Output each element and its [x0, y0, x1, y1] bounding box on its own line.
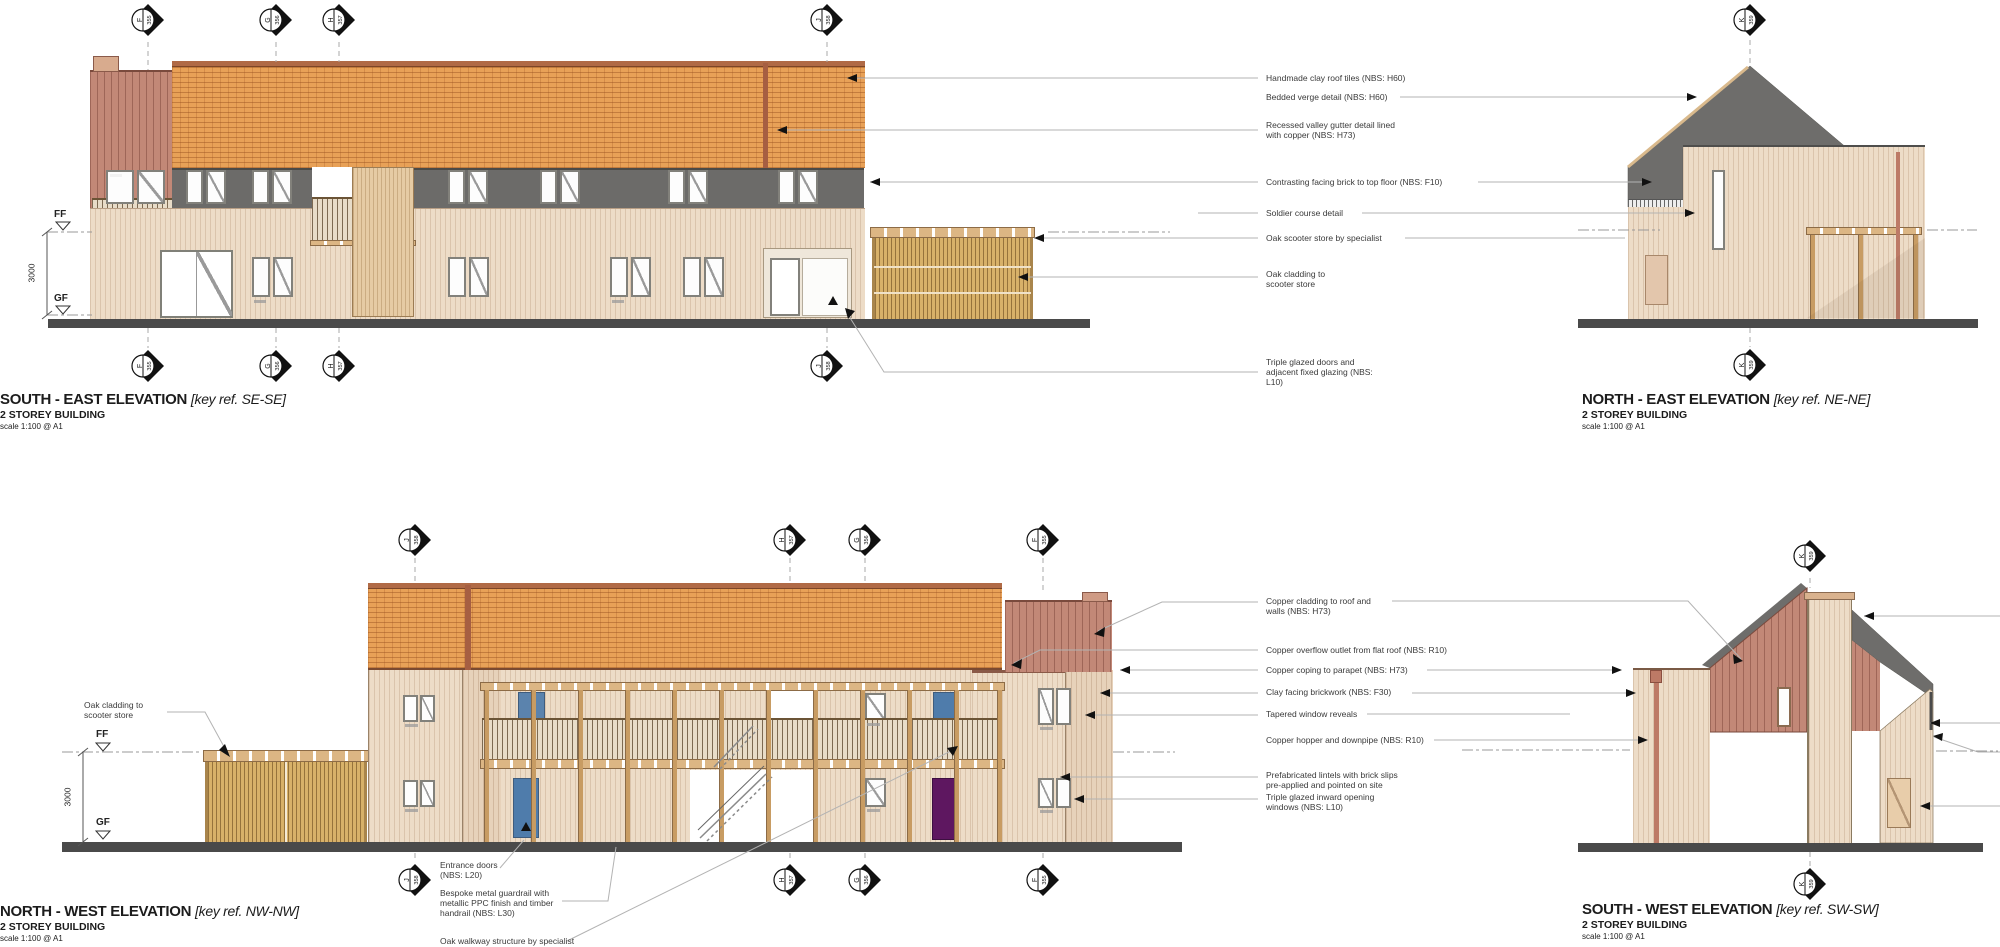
grid-letter: H — [779, 537, 786, 542]
grid-number: 358 — [414, 875, 420, 884]
sw-left-wall — [1633, 668, 1710, 843]
grid-letter: G — [265, 17, 272, 22]
nw-store-split — [285, 762, 287, 842]
se-fixed-glazing — [802, 258, 848, 316]
grid-number: 355 — [147, 15, 153, 24]
grid-number: 358 — [826, 361, 832, 370]
ne-ground-line — [1578, 319, 1978, 328]
walkway-post — [672, 690, 677, 842]
grid-number: 357 — [338, 361, 344, 370]
se-key-ref: [key ref. SE-SE] — [191, 391, 286, 407]
ne-title-block: NORTH - EAST ELEVATION [key ref. NE-NE] … — [1582, 391, 1870, 431]
window-tag — [254, 300, 266, 303]
annotation-triple-glazed-doors: Triple glazed doors and adjacent fixed g… — [1266, 357, 1373, 387]
drawing-sheet: F355 G356 H357 J358 F355 G356 H357 J358 … — [0, 0, 2000, 947]
grid-number: 357 — [789, 875, 795, 884]
window — [272, 170, 292, 204]
grid-letter: J — [404, 538, 411, 542]
annotation-copper-coping: Copper coping to parapet (NBS: H73) — [1266, 665, 1408, 675]
annotation-prefab-lintels: Prefabricated lintels with brick slips p… — [1266, 770, 1398, 790]
annotation-entrance-doors: Entrance doors (NBS: L20) — [440, 860, 498, 880]
window — [186, 170, 203, 204]
grid-letter: J — [816, 364, 823, 368]
sw-title-block: SOUTH - WEST ELEVATION [key ref. SW-SW] … — [1582, 901, 1879, 941]
ne-pergola-post — [1810, 235, 1815, 319]
grid-number: 359 — [1749, 360, 1755, 369]
window — [448, 170, 465, 204]
grid-letter: K — [1739, 17, 1746, 22]
nw-tower-chimney-cap — [1082, 592, 1108, 602]
walkway-post — [578, 690, 583, 842]
nw-ground-line — [62, 842, 1182, 852]
grid-letter: K — [1739, 362, 1746, 367]
window — [206, 170, 226, 204]
window — [403, 780, 418, 807]
sw-copper-window — [1777, 687, 1791, 727]
grid-number: 355 — [1042, 875, 1048, 884]
window — [468, 170, 488, 204]
sw-scale: scale 1:100 @ A1 — [1582, 932, 1879, 941]
nw-roof-seam — [465, 585, 471, 670]
ne-scale: scale 1:100 @ A1 — [1582, 422, 1870, 431]
nw-tower-side — [1065, 670, 1113, 843]
nw-title: NORTH - WEST ELEVATION — [0, 903, 191, 920]
window — [252, 257, 270, 297]
annotation-bedded-verge: Bedded verge detail (NBS: H60) — [1266, 92, 1387, 102]
nw-subtitle: 2 STOREY BUILDING — [0, 921, 299, 933]
annotation-triple-glazed-windows: Triple glazed inward opening windows (NB… — [1266, 792, 1374, 812]
sw-copper-slope — [1710, 588, 1807, 732]
nw-scale: scale 1:100 @ A1 — [0, 934, 299, 943]
grid-letter: K — [1799, 881, 1806, 886]
window — [688, 170, 708, 204]
sw-ground-line — [1578, 843, 1983, 852]
walkway-post — [625, 690, 630, 842]
nw-scooter-store-roof — [203, 750, 369, 762]
nw-key-ref: [key ref. NW-NW] — [195, 903, 299, 919]
sw-chimney-cap — [1804, 592, 1855, 600]
se-subtitle: 2 STOREY BUILDING — [0, 409, 286, 421]
grid-letter: K — [1799, 553, 1806, 558]
window-tag — [405, 724, 418, 727]
se-title: SOUTH - EAST ELEVATION — [0, 391, 187, 408]
sw-chimney — [1807, 597, 1852, 843]
window — [252, 170, 269, 204]
window — [668, 170, 685, 204]
ne-pergola-post — [1858, 235, 1863, 319]
ne-title: NORTH - EAST ELEVATION — [1582, 391, 1770, 408]
grid-letter: F — [1032, 538, 1039, 542]
se-ff-label: FF — [54, 209, 66, 220]
walkway-post — [719, 690, 724, 842]
annotation-nw-oak-cladding: Oak cladding to scooter store — [84, 700, 143, 720]
walkway-post — [531, 690, 536, 842]
grid-number: 356 — [864, 535, 870, 544]
annotation-clay-roof-tiles: Handmade clay roof tiles (NBS: H60) — [1266, 73, 1405, 83]
grid-letter: H — [328, 363, 335, 368]
grid-number: 356 — [275, 361, 281, 370]
grid-number: 359 — [1809, 879, 1815, 888]
walkway-post — [484, 690, 489, 842]
ne-door-panel — [1645, 255, 1668, 305]
window — [420, 695, 435, 722]
nw-title-block: NORTH - WEST ELEVATION [key ref. NW-NW] … — [0, 903, 299, 943]
walkway-post — [813, 690, 818, 842]
se-store-rail-2 — [874, 292, 1031, 294]
sw-hopper — [1650, 670, 1662, 683]
grid-number: 358 — [826, 15, 832, 24]
window — [683, 257, 701, 297]
nw-ff-label: FF — [96, 729, 108, 740]
se-balcony-railing — [312, 197, 352, 240]
window — [540, 170, 557, 204]
window — [560, 170, 580, 204]
window — [1056, 778, 1071, 808]
grid-number: 355 — [147, 361, 153, 370]
walkway-post — [997, 690, 1002, 842]
grid-letter: F — [137, 18, 144, 22]
grid-number: 358 — [414, 535, 420, 544]
window — [469, 257, 489, 297]
grid-letter: G — [265, 363, 272, 368]
annotation-tapered-reveals: Tapered window reveals — [1266, 709, 1357, 719]
grid-letter: F — [1032, 878, 1039, 882]
sw-title: SOUTH - WEST ELEVATION — [1582, 901, 1772, 918]
window — [778, 170, 795, 204]
sw-downpipe — [1654, 670, 1659, 843]
door-swing-icon — [521, 822, 531, 831]
window — [137, 170, 165, 204]
ne-stair-window — [1712, 170, 1725, 250]
window — [865, 778, 886, 807]
ne-copper-downpipe — [1896, 152, 1900, 319]
nw-walkway-top-beam — [480, 682, 1005, 691]
annotation-soldier-course: Soldier course detail — [1266, 208, 1343, 218]
walkway-post — [860, 690, 865, 842]
ne-pergola-post — [1913, 235, 1918, 319]
window-tag — [1040, 727, 1053, 730]
nw-walkway-floor-beam — [480, 759, 1005, 769]
se-oak-stair-bay — [352, 167, 414, 317]
grid-letter: G — [854, 537, 861, 542]
door-swing-icon — [828, 296, 838, 305]
window-tag — [110, 174, 122, 177]
annotation-oak-cladding: Oak cladding to scooter store — [1266, 269, 1325, 289]
window — [704, 257, 724, 297]
annotation-valley-gutter: Recessed valley gutter detail lined with… — [1266, 120, 1395, 140]
se-triple-glazed-door — [770, 258, 800, 316]
annotation-oak-scooter-store: Oak scooter store by specialist — [1266, 233, 1382, 243]
se-storey-dim: 3000 — [26, 264, 36, 283]
annotation-copper-hopper: Copper hopper and downpipe (NBS: R10) — [1266, 735, 1424, 745]
annotation-guardrail: Bespoke metal guardrail with metallic PP… — [440, 888, 553, 918]
grid-letter: G — [854, 877, 861, 882]
grid-number: 356 — [275, 15, 281, 24]
window — [273, 257, 293, 297]
annotation-copper-overflow: Copper overflow outlet from flat roof (N… — [1266, 645, 1447, 655]
grid-letter: J — [404, 878, 411, 882]
window — [865, 693, 886, 721]
se-main-roof — [172, 63, 865, 168]
grid-number: 357 — [789, 535, 795, 544]
nw-tower-copper — [1005, 600, 1112, 672]
window-tag — [405, 809, 418, 812]
se-title-block: SOUTH - EAST ELEVATION [key ref. SE-SE] … — [0, 391, 286, 431]
ne-balustrade — [1628, 199, 1683, 207]
nw-upper-guardrail — [482, 718, 1002, 760]
window — [448, 257, 466, 297]
grid-number: 356 — [864, 875, 870, 884]
window — [1038, 778, 1054, 808]
window — [403, 695, 418, 722]
window — [1056, 688, 1071, 725]
grid-number: 357 — [338, 15, 344, 24]
ne-pergola-beam — [1806, 227, 1922, 235]
grid-number: 359 — [1809, 551, 1815, 560]
window-tag — [1040, 810, 1053, 813]
walkway-post — [766, 690, 771, 842]
se-entrance-door-leaf — [196, 252, 232, 316]
ne-key-ref: [key ref. NE-NE] — [1774, 391, 1870, 407]
grid-letter: H — [779, 877, 786, 882]
se-roof-ridge — [172, 61, 865, 67]
grid-number: 359 — [1749, 15, 1755, 24]
se-valley-gutter — [763, 63, 768, 168]
grid-letter: J — [816, 18, 823, 22]
sw-door — [1887, 778, 1911, 828]
window — [1038, 688, 1054, 725]
se-store-rail-1 — [874, 266, 1031, 268]
se-scale: scale 1:100 @ A1 — [0, 422, 286, 431]
sw-key-ref: [key ref. SW-SW] — [1776, 901, 1878, 917]
window — [610, 257, 628, 297]
nw-stairwell-void-lower — [690, 770, 818, 842]
window — [798, 170, 818, 204]
se-scooter-store — [872, 238, 1033, 319]
window — [631, 257, 651, 297]
nw-roof-ridge — [368, 583, 1002, 589]
window-tag — [867, 723, 880, 726]
annotation-oak-walkway: Oak walkway structure by specialist — [440, 936, 574, 946]
se-tower-chimney-detail — [93, 56, 119, 72]
annotation-contrasting-brick: Contrasting facing brick to top floor (N… — [1266, 177, 1442, 187]
annotation-copper-cladding: Copper cladding to roof and walls (NBS: … — [1266, 596, 1371, 616]
window — [420, 780, 435, 807]
sw-subtitle: 2 STOREY BUILDING — [1582, 919, 1879, 931]
walkway-post — [954, 690, 959, 842]
annotation-clay-brickwork: Clay facing brickwork (NBS: F30) — [1266, 687, 1391, 697]
window-tag — [612, 300, 624, 303]
walkway-post — [907, 690, 912, 842]
se-ground-line — [48, 319, 1090, 328]
se-scooter-store-roof — [870, 227, 1035, 238]
grid-letter: H — [328, 17, 335, 22]
grid-letter: F — [137, 364, 144, 368]
nw-storey-dim: 3000 — [62, 788, 72, 807]
grid-number: 355 — [1042, 535, 1048, 544]
window-tag — [867, 809, 880, 812]
ne-subtitle: 2 STOREY BUILDING — [1582, 409, 1870, 421]
nw-main-roof — [368, 585, 1002, 670]
se-gf-label: GF — [54, 293, 68, 304]
nw-gf-label: GF — [96, 817, 110, 828]
